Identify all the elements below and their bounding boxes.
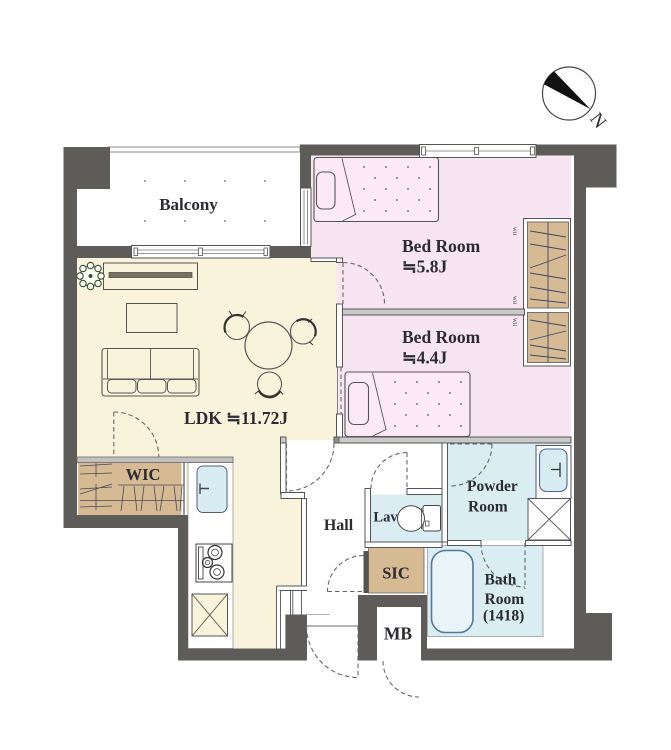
svg-text:SIC: SIC <box>382 564 410 583</box>
svg-text:Bath: Bath <box>485 572 517 589</box>
svg-text:WH: WH <box>511 296 516 305</box>
svg-text:LDK ≒11.72J: LDK ≒11.72J <box>184 408 288 428</box>
svg-text:≒4.4J: ≒4.4J <box>402 348 448 368</box>
svg-text:Bed Room: Bed Room <box>402 236 481 256</box>
svg-text:(1418): (1418) <box>483 608 524 625</box>
svg-text:Hall: Hall <box>324 517 354 534</box>
svg-text:Balcony: Balcony <box>159 195 218 214</box>
svg-text:WIC: WIC <box>126 465 161 484</box>
svg-text:Powder: Powder <box>467 478 518 495</box>
svg-text:Room: Room <box>468 499 508 516</box>
svg-text:WH: WH <box>511 227 516 236</box>
svg-text:≒5.8J: ≒5.8J <box>402 257 448 277</box>
svg-text:MB: MB <box>384 624 413 644</box>
svg-text:Lav: Lav <box>373 510 398 526</box>
svg-text:WH: WH <box>511 318 516 327</box>
svg-text:Bed Room: Bed Room <box>402 327 481 347</box>
svg-text:Room: Room <box>485 591 525 608</box>
